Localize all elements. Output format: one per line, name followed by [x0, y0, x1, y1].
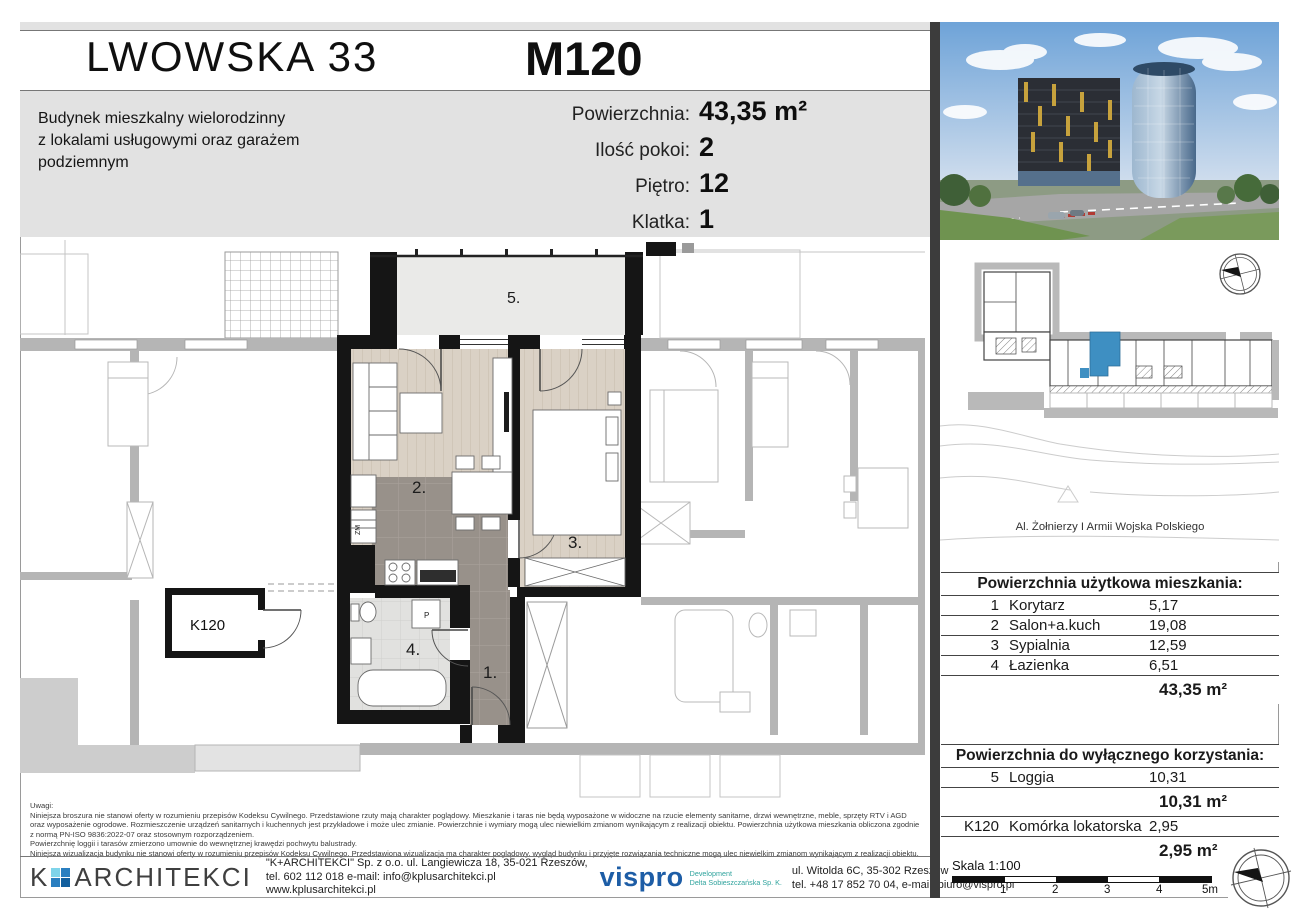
vispro-sub-line: Development [690, 869, 782, 878]
table-row: 1 Korytarz 5,17 [941, 596, 1279, 616]
table-row: K120 Komórka lokatorska 2,95 [941, 816, 1279, 837]
architect-logo-k: K [30, 862, 47, 893]
bathroom-sink [351, 638, 371, 664]
spec-row-area: Powierzchnia: 43,35 m² [400, 96, 920, 132]
storage-room-k120: K120 [165, 588, 301, 658]
bedroom-window [582, 336, 624, 349]
kitchen-sink [420, 570, 456, 582]
table-total: 43,35 m² [941, 676, 1279, 704]
brochure-page: LWOWSKA 33 M120 Budynek mieszkalny wielo… [0, 0, 1300, 919]
spec-row-rooms: Ilość pokoi: 2 [400, 132, 920, 168]
column-divider [930, 22, 940, 898]
sofa [353, 363, 397, 460]
architect-address: "K+ARCHITEKCI" Sp. z o.o. ul. Langiewicz… [266, 857, 588, 898]
architect-website[interactable]: www.kplusarchitekci.pl [266, 884, 588, 898]
bathtub [358, 670, 446, 706]
building-left [1018, 78, 1120, 186]
spec-label: Klatka: [400, 212, 690, 234]
row-area: 6,51 [1149, 657, 1279, 674]
north-compass [1228, 845, 1294, 911]
row-name: Salon+a.kuch [1009, 617, 1149, 634]
unit-specs: Powierzchnia: 43,35 m² Ilość pokoi: 2 Pi… [400, 96, 920, 240]
washer-label: P [424, 611, 429, 620]
table-title: Powierzchnia do wyłącznego korzystania: [941, 744, 1279, 768]
architect-address-line: tel. 602 112 018 e-mail: info@kplusarchi… [266, 871, 588, 885]
room-label-bedroom: 3. [568, 533, 582, 552]
room-label-corridor: 1. [483, 663, 497, 682]
row-area: 12,59 [1149, 637, 1279, 654]
neighbor-loggia-outline [20, 254, 88, 334]
dining-table [452, 472, 512, 514]
usable-area-table: Powierzchnia użytkowa mieszkania: 1 Kory… [941, 572, 1279, 704]
row-name: Łazienka [1009, 657, 1149, 674]
neighbor-bed [108, 362, 148, 446]
table-row: 4 Łazienka 6,51 [941, 656, 1279, 676]
architect-plus-icon [51, 868, 70, 887]
row-number: 1 [941, 597, 1009, 614]
spec-row-floor: Piętro: 12 [400, 168, 920, 204]
row-area: 10,31 [1149, 769, 1279, 786]
neighbor-bathtub [675, 610, 733, 702]
street-label: Al. Żołnierzy I Armii Wojska Polskiego [1016, 520, 1205, 533]
vispro-sub-line: Delta Sobieszczańska Sp. K. [690, 878, 782, 887]
footer: K ARCHITEKCI "K+ARCHITEKCI" Sp. z o.o. u… [20, 856, 931, 898]
dishwasher-label: ZM [355, 525, 362, 535]
scale-ticks: 1 2 3 4 5m [952, 883, 1224, 896]
row-area: 19,08 [1149, 617, 1279, 634]
architect-logo: K ARCHITEKCI [30, 862, 252, 893]
scale-label: Skala 1:100 [952, 858, 1232, 873]
nightstand [608, 392, 621, 405]
spec-value: 1 [699, 204, 714, 235]
scale-tick: 2 [1052, 884, 1058, 896]
row-area: 5,17 [1149, 597, 1279, 614]
scale-tick: 5m [1202, 884, 1218, 896]
room-label-bathroom: 4. [406, 640, 420, 659]
spec-value: 2 [699, 132, 714, 163]
spec-value: 43,35 m² [699, 96, 807, 127]
title-strip: LWOWSKA 33 M120 [20, 30, 930, 91]
spec-label: Ilość pokoi: [400, 140, 690, 162]
highlighted-unit-stub [1080, 368, 1089, 378]
row-number: 5 [941, 769, 1009, 786]
toilet-tank [351, 604, 359, 621]
table-row: 3 Sypialnia 12,59 [941, 636, 1279, 656]
toilet [360, 602, 376, 622]
row-number: 3 [941, 637, 1009, 654]
fridge [351, 475, 376, 507]
building-description: Budynek mieszkalny wielorodzinny z lokal… [38, 108, 388, 174]
scale-tick: 1 [1000, 884, 1006, 896]
scale-tick: 4 [1156, 884, 1162, 896]
table-row: 5 Loggia 10,31 [941, 768, 1279, 788]
room-label-loggia: 5. [507, 290, 520, 307]
vispro-logo-text: vispro [600, 862, 684, 893]
floor-plan-drawing: 5. [20, 240, 930, 800]
architect-address-line: "K+ARCHITEKCI" Sp. z o.o. ul. Langiewicz… [266, 857, 588, 871]
scale-bar: Skala 1:100 1 2 3 4 5m [952, 858, 1232, 896]
vispro-subtext: Development Delta Sobieszczańska Sp. K. [690, 869, 782, 887]
compass-icon [1220, 254, 1260, 294]
row-area: 2,95 [1149, 818, 1279, 835]
row-name: Komórka lokatorska [1009, 818, 1149, 835]
row-number: 4 [941, 657, 1009, 674]
coffee-table [400, 393, 442, 433]
notes: Uwagi: Niniejsza broszura nie stanowi of… [30, 801, 923, 859]
neighbor-balcony-grid [225, 252, 338, 338]
loggia: 5. [370, 242, 694, 335]
table-total: 10,31 m² [941, 788, 1279, 816]
spec-row-staircase: Klatka: 1 [400, 204, 920, 240]
row-number: K120 [941, 818, 1009, 835]
notes-title: Uwagi: [30, 801, 923, 811]
row-number: 2 [941, 617, 1009, 634]
storage-label: K120 [190, 617, 225, 634]
spec-label: Powierzchnia: [400, 104, 690, 126]
scale-tick: 3 [1104, 884, 1110, 896]
project-title: LWOWSKA 33 [86, 33, 378, 81]
table-row: 2 Salon+a.kuch 19,08 [941, 616, 1279, 636]
header: LWOWSKA 33 M120 Budynek mieszkalny wielo… [20, 22, 931, 237]
compass-icon [1231, 848, 1291, 908]
notes-paragraph: Powierzchnię loggii i tarasów zmierzono … [30, 839, 923, 849]
salon-window [460, 336, 508, 349]
floor-plan: 5. [20, 240, 930, 800]
row-name: Sypialnia [1009, 637, 1149, 654]
building-visualization [940, 22, 1279, 240]
scale-strip [952, 876, 1212, 883]
architect-logo-name: ARCHITEKCI [74, 862, 251, 893]
room-label-salon: 2. [412, 478, 426, 497]
spec-value: 12 [699, 168, 729, 199]
building-right [1132, 62, 1196, 198]
stove [385, 560, 415, 585]
row-name: Korytarz [1009, 597, 1149, 614]
site-plan: Al. Żołnierzy I Armii Wojska Polskiego [940, 240, 1279, 562]
row-name: Loggia [1009, 769, 1149, 786]
table-title: Powierzchnia użytkowa mieszkania: [941, 572, 1279, 596]
developer-logo: vispro Development Delta Sobieszczańska … [600, 862, 782, 893]
notes-paragraph: Niniejsza broszura nie stanowi oferty w … [30, 811, 923, 840]
tv [504, 392, 509, 432]
unit-id: M120 [525, 31, 643, 86]
spec-label: Piętro: [400, 176, 690, 198]
